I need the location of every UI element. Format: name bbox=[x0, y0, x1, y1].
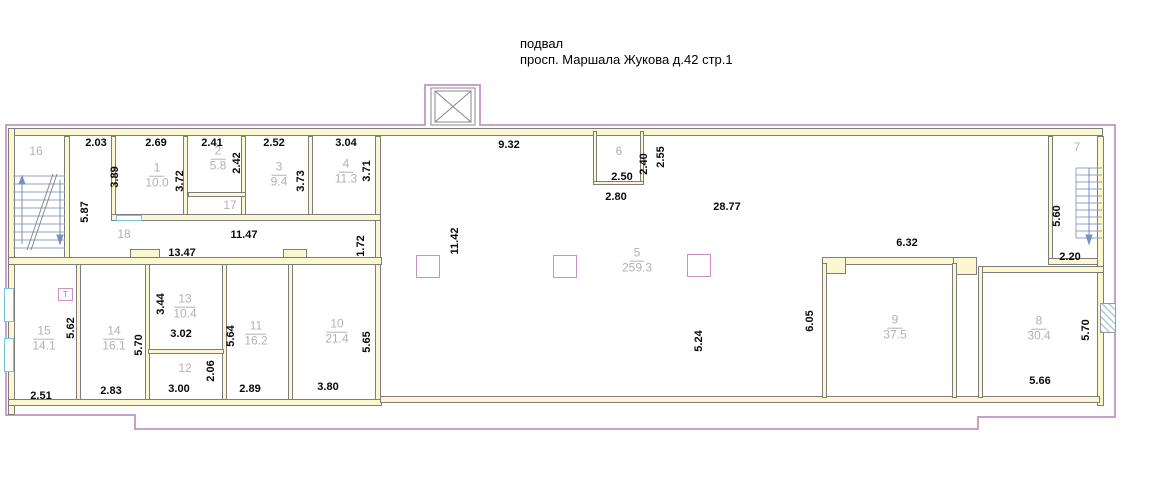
floor-level-label: подвал bbox=[520, 36, 733, 52]
wall bbox=[8, 128, 1103, 136]
wall bbox=[241, 136, 246, 221]
column-icon bbox=[687, 254, 711, 277]
wall bbox=[148, 349, 224, 354]
dimension: 2.51 bbox=[30, 390, 51, 402]
wall bbox=[288, 264, 293, 400]
dimension: 3.44 bbox=[155, 293, 167, 314]
boundary-line bbox=[977, 416, 1116, 418]
room-label-1: 110.0 bbox=[145, 162, 168, 191]
wall bbox=[375, 264, 381, 400]
dimension: 3.89 bbox=[109, 166, 121, 187]
dimension: 3.72 bbox=[174, 170, 186, 191]
dimension: 2.06 bbox=[205, 360, 217, 381]
dimension: 3.02 bbox=[170, 328, 191, 340]
dimension: 13.47 bbox=[168, 247, 196, 259]
wall bbox=[308, 136, 313, 221]
boundary-line bbox=[479, 124, 1116, 126]
dimension: 1.72 bbox=[355, 235, 367, 256]
room-label-3: 39.4 bbox=[271, 161, 288, 190]
plan-title: подвал просп. Маршала Жукова д.42 стр.1 bbox=[520, 36, 733, 68]
boundary-line bbox=[479, 84, 481, 126]
dimension: 2.89 bbox=[239, 383, 260, 395]
dimension: 2.80 bbox=[605, 191, 626, 203]
room-label-14: 1416.1 bbox=[102, 325, 125, 354]
wall bbox=[978, 266, 1104, 273]
dimension: 2.69 bbox=[145, 137, 166, 149]
dimension: 5.70 bbox=[133, 334, 145, 355]
room-label-8: 830.4 bbox=[1027, 315, 1050, 344]
dimension: 2.03 bbox=[85, 137, 106, 149]
dimension: 2.52 bbox=[263, 137, 284, 149]
wall bbox=[375, 136, 381, 265]
dimension: 5.87 bbox=[79, 201, 91, 222]
room-label-18: 18 bbox=[117, 228, 130, 242]
staircase-icon bbox=[1072, 166, 1104, 248]
room-label-6: 6 bbox=[616, 145, 623, 159]
room-label-4: 411.3 bbox=[335, 158, 357, 187]
boundary-line bbox=[977, 416, 979, 430]
wall-hatch-icon bbox=[1100, 303, 1116, 333]
dimension: 6.32 bbox=[896, 237, 917, 249]
column-icon bbox=[416, 255, 440, 278]
dimension: 5.62 bbox=[65, 317, 77, 338]
wall bbox=[380, 396, 1100, 403]
room-label-5: 5259.3 bbox=[622, 247, 652, 276]
dimension: 3.73 bbox=[295, 170, 307, 191]
dimension: 2.55 bbox=[655, 146, 667, 167]
dimension: 28.77 bbox=[713, 201, 741, 213]
wall bbox=[593, 131, 597, 185]
room-label-13: 1310.4 bbox=[173, 293, 196, 322]
dimension: 5.64 bbox=[225, 325, 237, 346]
dimension: 5.65 bbox=[361, 331, 373, 352]
dimension: 2.50 bbox=[611, 171, 632, 183]
boundary-line bbox=[424, 84, 426, 126]
room-label-7: 7 bbox=[1074, 141, 1081, 155]
wall bbox=[111, 214, 381, 221]
wall bbox=[130, 249, 160, 258]
dimension: 5.60 bbox=[1051, 205, 1063, 226]
window-icon bbox=[4, 338, 14, 372]
wall bbox=[145, 264, 150, 400]
dimension: 3.04 bbox=[335, 137, 356, 149]
wall bbox=[1048, 136, 1053, 265]
boundary-line bbox=[1114, 124, 1116, 418]
dimension: 5.66 bbox=[1029, 375, 1050, 387]
column-icon bbox=[553, 255, 577, 278]
dimension: 2.83 bbox=[100, 385, 121, 397]
dimension: 2.42 bbox=[231, 152, 243, 173]
boundary-line bbox=[134, 428, 979, 430]
room-label-15: 1514.1 bbox=[32, 325, 55, 354]
wall bbox=[188, 192, 246, 197]
wall bbox=[283, 249, 307, 258]
t-marker-icon: T bbox=[58, 288, 73, 301]
dimension: 6.05 bbox=[804, 310, 816, 331]
wall bbox=[952, 263, 957, 398]
boundary-line bbox=[5, 124, 426, 126]
room-label-9: 937.5 bbox=[883, 314, 906, 343]
dimension: 2.41 bbox=[201, 137, 222, 149]
elevator-icon bbox=[429, 86, 477, 128]
room-label-12: 12 bbox=[178, 362, 191, 376]
dimension: 11.42 bbox=[449, 228, 461, 255]
dimension: 3.80 bbox=[317, 381, 338, 393]
room-label-11: 1116.2 bbox=[244, 320, 267, 349]
wall bbox=[978, 266, 983, 398]
boundary-line bbox=[5, 414, 136, 416]
dimension: 3.71 bbox=[361, 160, 373, 181]
window-icon bbox=[4, 288, 14, 322]
staircase-icon bbox=[13, 172, 65, 252]
dimension: 3.00 bbox=[168, 383, 189, 395]
window-icon bbox=[116, 215, 142, 221]
room-label-10: 1021.4 bbox=[325, 318, 348, 347]
room-label-16: 16 bbox=[29, 145, 42, 159]
dimension: 9.32 bbox=[498, 139, 519, 151]
room-label-17: 17 bbox=[223, 199, 236, 213]
address-label: просп. Маршала Жукова д.42 стр.1 bbox=[520, 52, 733, 68]
floor-plan: подвал просп. Маршала Жукова д.42 стр.1 bbox=[0, 0, 1169, 490]
wall bbox=[8, 399, 382, 406]
wall bbox=[822, 263, 827, 398]
dimension: 2.20 bbox=[1059, 251, 1080, 263]
boundary-line bbox=[5, 124, 7, 416]
dimension: 5.70 bbox=[1080, 319, 1092, 340]
dimension: 2.40 bbox=[638, 153, 650, 174]
dimension: 11.47 bbox=[231, 229, 258, 241]
dimension: 5.24 bbox=[693, 330, 705, 351]
